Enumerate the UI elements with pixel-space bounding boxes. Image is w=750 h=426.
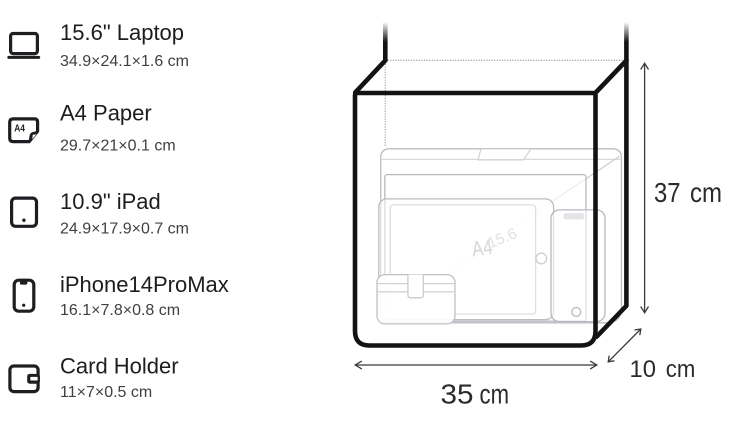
svg-text:24.9×17.9×0.7 cm: 24.9×17.9×0.7 cm [60,221,189,238]
svg-text:cm: cm [480,379,510,410]
svg-text:A4: A4 [471,236,495,262]
svg-text:A4: A4 [14,123,25,135]
svg-text:Card Holder: Card Holder [60,353,179,378]
svg-text:16.1×7.8×0.8 cm: 16.1×7.8×0.8 cm [60,302,180,319]
svg-text:35: 35 [441,379,474,410]
svg-text:cm: cm [666,356,696,383]
svg-text:10: 10 [630,356,657,383]
svg-text:15.6" Laptop: 15.6" Laptop [60,20,184,45]
svg-text:34.9×24.1×1.6 cm: 34.9×24.1×1.6 cm [60,53,189,70]
svg-text:29.7×21×0.1 cm: 29.7×21×0.1 cm [60,137,176,154]
svg-text:37: 37 [654,177,681,208]
svg-text:cm: cm [690,177,722,208]
svg-text:10.9" iPad: 10.9" iPad [60,189,161,214]
svg-text:iPhone14ProMax: iPhone14ProMax [60,272,229,297]
svg-text:A4 Paper: A4 Paper [60,101,152,126]
svg-text:11×7×0.5 cm: 11×7×0.5 cm [60,384,152,401]
